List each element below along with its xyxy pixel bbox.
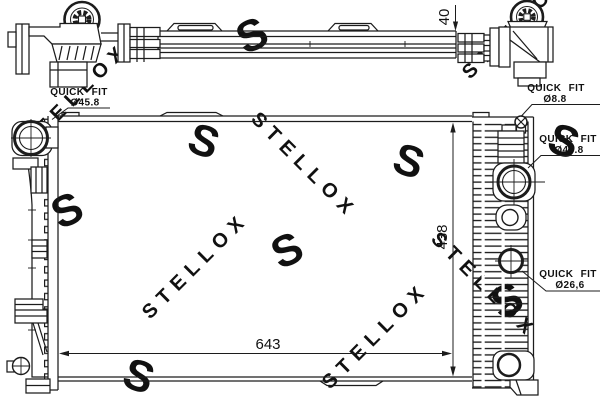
quick-fit-title: QUICK FIT xyxy=(539,269,597,280)
right-middle-port xyxy=(496,205,526,230)
left-clip-lower xyxy=(32,240,47,258)
dim-40-text: 40 xyxy=(436,9,453,26)
quick-fit-size: Ø8.8 xyxy=(543,94,566,105)
top-view-right-connectors xyxy=(458,28,499,66)
quick-fit-title: QUICK FIT xyxy=(50,87,108,98)
quick-fit-title: QUICK FIT xyxy=(527,83,585,94)
front-right-tank xyxy=(472,113,545,396)
left-clip-upper xyxy=(31,167,47,193)
radiator-technical-drawing: STELLOX STELLOX STELLOX STELLOX STELLOX … xyxy=(0,0,600,400)
right-connector-block xyxy=(498,125,524,163)
quick-fit-size: Ø45.8 xyxy=(554,145,583,156)
quick-fit-size: Ø26,6 xyxy=(555,280,584,291)
top-view-left-end-cap xyxy=(118,24,160,62)
quick-fit-size: Ø45.8 xyxy=(70,98,99,109)
dim-438-text: 438 xyxy=(434,224,451,249)
quick-fit-title: QUICK FIT xyxy=(539,134,597,145)
drawing-canvas: STELLOX STELLOX STELLOX STELLOX STELLOX … xyxy=(0,0,600,400)
dim-643-text: 643 xyxy=(255,336,280,353)
